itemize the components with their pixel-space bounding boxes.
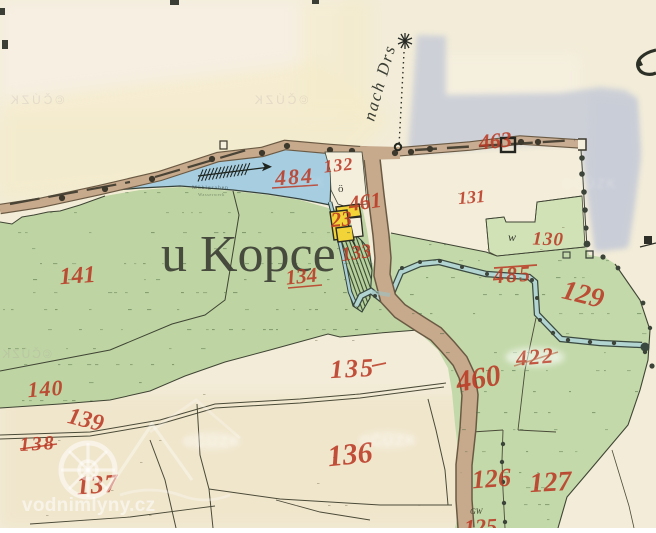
svg-text:©ČÚZK: ©ČÚZK	[8, 92, 65, 107]
svg-text:131: 131	[457, 186, 486, 208]
svg-text:ö: ö	[338, 183, 344, 195]
svg-text:130: 130	[532, 228, 564, 250]
svg-text:23: 23	[329, 206, 353, 232]
svg-text:©ČÚZK: ©ČÚZK	[252, 92, 309, 107]
svg-text:©ČÚZK: ©ČÚZK	[0, 346, 52, 361]
svg-text:135: 135	[329, 353, 375, 384]
svg-text:461: 461	[346, 187, 383, 216]
svg-text:141: 141	[59, 262, 97, 290]
svg-text:485: 485	[491, 261, 533, 289]
svg-text:©ČÚZK: ©ČÚZK	[359, 432, 417, 448]
svg-text:138: 138	[19, 432, 56, 456]
svg-text:132: 132	[322, 154, 354, 177]
svg-text:133: 133	[340, 240, 373, 266]
svg-text:125: 125	[463, 513, 497, 528]
svg-text:140: 140	[27, 375, 65, 402]
svg-text:Wasserwerk: Wasserwerk	[198, 192, 225, 197]
svg-text:126: 126	[471, 463, 512, 495]
svg-text:vodnimlyny.cz: vodnimlyny.cz	[22, 495, 155, 516]
svg-text:©ČÚZK: ©ČÚZK	[183, 433, 241, 449]
svg-text:©ČÚZK: ©ČÚZK	[274, 174, 326, 189]
svg-text:©ČÚZK: ©ČÚZK	[563, 176, 618, 191]
svg-text:Mühlgraben: Mühlgraben	[192, 185, 229, 191]
svg-text:w: w	[508, 230, 516, 244]
svg-text:463: 463	[477, 126, 513, 154]
svg-text:127: 127	[529, 466, 574, 499]
svg-text:©ČÚZK: ©ČÚZK	[508, 350, 563, 365]
